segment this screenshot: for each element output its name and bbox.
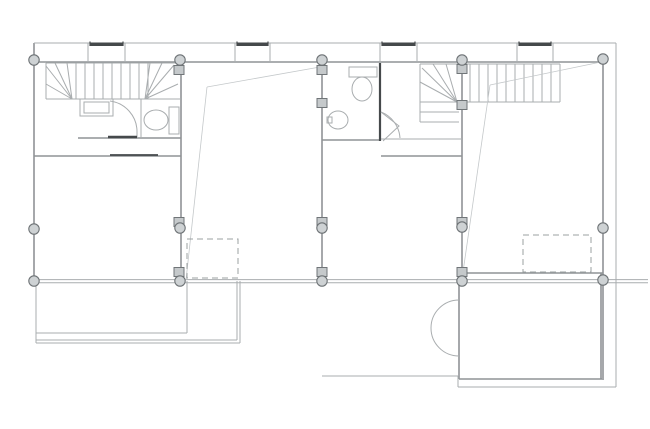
structural-column [317, 223, 327, 233]
steel-post [457, 65, 467, 74]
structural-column [29, 224, 39, 234]
stair2-winder [420, 82, 457, 102]
steel-post [457, 268, 467, 277]
steel-post [457, 101, 467, 110]
floor-plan-canvas [0, 0, 650, 429]
structural-column [598, 275, 608, 285]
structural-column [457, 55, 467, 65]
structural-column [598, 223, 608, 233]
structural-column [29, 276, 39, 286]
unit1-toilet-bowl [144, 110, 168, 130]
steel-post [174, 66, 184, 75]
unit4-void-line [463, 85, 490, 272]
steel-post [317, 66, 327, 75]
unit3-sink-basin [328, 111, 348, 129]
unit4-void-line [490, 62, 601, 85]
window-bar [90, 43, 123, 47]
structural-column [29, 55, 39, 65]
structural-column [317, 55, 327, 65]
unit2-skylight-dashed [187, 239, 238, 278]
window-bar [237, 43, 268, 47]
stair1-winder [145, 84, 178, 99]
unit1-toilet-tank [169, 107, 179, 134]
unit3-toilet-bowl [352, 77, 372, 101]
unit3-door-leaf [381, 112, 399, 141]
floor-plan-page [0, 0, 650, 429]
steel-post [174, 268, 184, 277]
structural-column [317, 276, 327, 286]
structural-column [175, 276, 185, 286]
entry-door-swing [431, 300, 459, 356]
unit4-skylight-dashed [523, 235, 591, 272]
window-bar [382, 43, 415, 47]
unit3-toilet-tank [349, 67, 377, 77]
window-bar [519, 43, 551, 47]
unit1-door-swing [110, 101, 137, 132]
steel-post [317, 99, 327, 108]
steel-post [317, 268, 327, 277]
unit1-washbasin-inner [84, 102, 109, 113]
structural-column [457, 222, 467, 232]
structural-column [598, 54, 608, 64]
stair2-winder [433, 64, 457, 102]
unit2-void-line [186, 87, 207, 280]
unit2-void-line [207, 67, 320, 87]
structural-column [175, 55, 185, 65]
structural-column [457, 276, 467, 286]
structural-column [175, 223, 185, 233]
